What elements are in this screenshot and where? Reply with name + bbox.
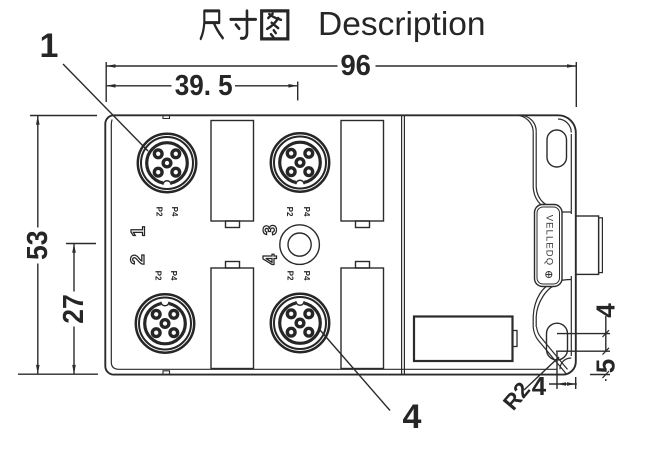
svg-text:39. 5: 39. 5 [175, 70, 233, 102]
svg-text:P2: P2 [155, 207, 164, 217]
svg-text:5: 5 [591, 359, 621, 373]
svg-text:P4: P4 [170, 207, 179, 217]
svg-text:53: 53 [22, 231, 54, 260]
svg-text:4: 4 [261, 254, 282, 265]
svg-text:VELLEDQ: VELLEDQ [543, 215, 554, 267]
svg-text:P4: P4 [302, 271, 311, 281]
svg-text:Description: Description [318, 6, 486, 43]
svg-text:2: 2 [128, 254, 149, 265]
svg-text:P4: P4 [169, 271, 178, 281]
svg-text:4: 4 [591, 303, 621, 318]
svg-text:4: 4 [403, 398, 422, 436]
svg-text:27: 27 [58, 294, 90, 324]
svg-text:1: 1 [40, 27, 59, 65]
svg-text:P2: P2 [285, 207, 294, 217]
svg-text:P4: P4 [302, 207, 311, 217]
svg-text:1: 1 [129, 226, 150, 237]
svg-text:3: 3 [260, 225, 281, 236]
svg-text:P2: P2 [286, 271, 295, 281]
svg-text:P2: P2 [154, 271, 163, 281]
svg-text:96: 96 [340, 50, 371, 82]
